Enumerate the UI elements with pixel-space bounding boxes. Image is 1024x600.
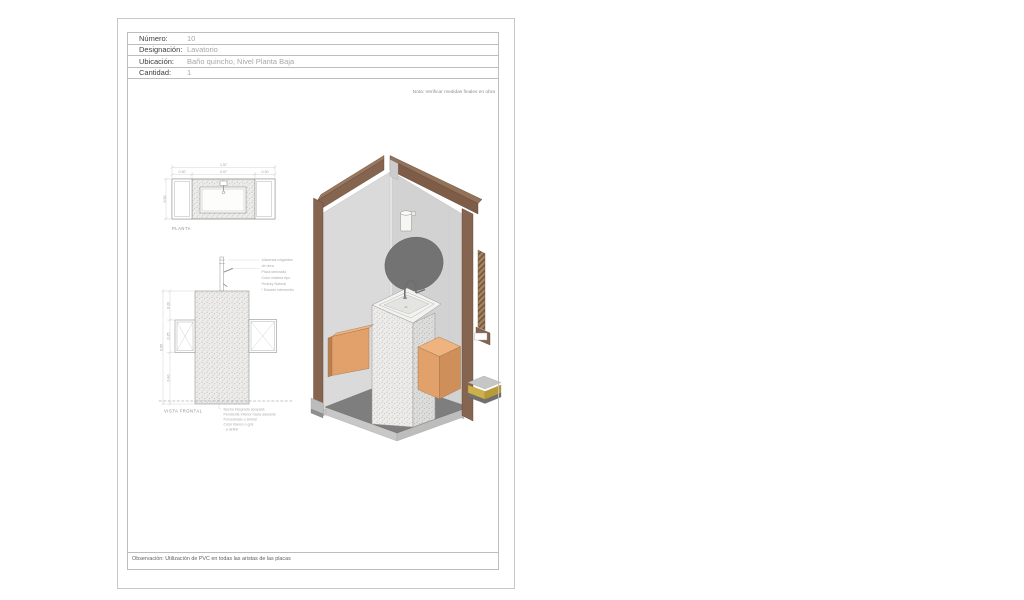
observation-bar: Observación: Utilización de PVC en todas… — [128, 552, 498, 569]
table-row: Cantidad: 1 — [128, 68, 498, 80]
table-row: Ubicación: Baño quincho, Nivel Planta Ba… — [128, 56, 498, 68]
document-page: 1.57 0.30 0.97 0.30 0.50 — [117, 18, 515, 589]
row-label: Cantidad: — [128, 67, 187, 78]
row-label: Designación: — [128, 44, 187, 55]
row-label: Ubicación: — [128, 56, 187, 67]
spec-table: Número: 10 Designación: Lavatorio Ubicac… — [128, 33, 498, 79]
table-row: Número: 10 — [128, 33, 498, 45]
table-row: Designación: Lavatorio — [128, 45, 498, 57]
verification-note: Nota: Verificar medidas finales en obra — [413, 90, 495, 95]
row-value: 10 — [187, 33, 195, 44]
row-value: Baño quincho, Nivel Planta Baja — [187, 56, 294, 67]
page-background: 1.57 0.30 0.97 0.30 0.50 — [0, 0, 1024, 600]
content-frame: Número: 10 Designación: Lavatorio Ubicac… — [127, 32, 499, 570]
observation-text: Observación: Utilización de PVC en todas… — [132, 556, 291, 562]
row-value: 1 — [187, 67, 191, 78]
row-value: Lavatorio — [187, 44, 218, 55]
row-label: Número: — [128, 33, 187, 44]
